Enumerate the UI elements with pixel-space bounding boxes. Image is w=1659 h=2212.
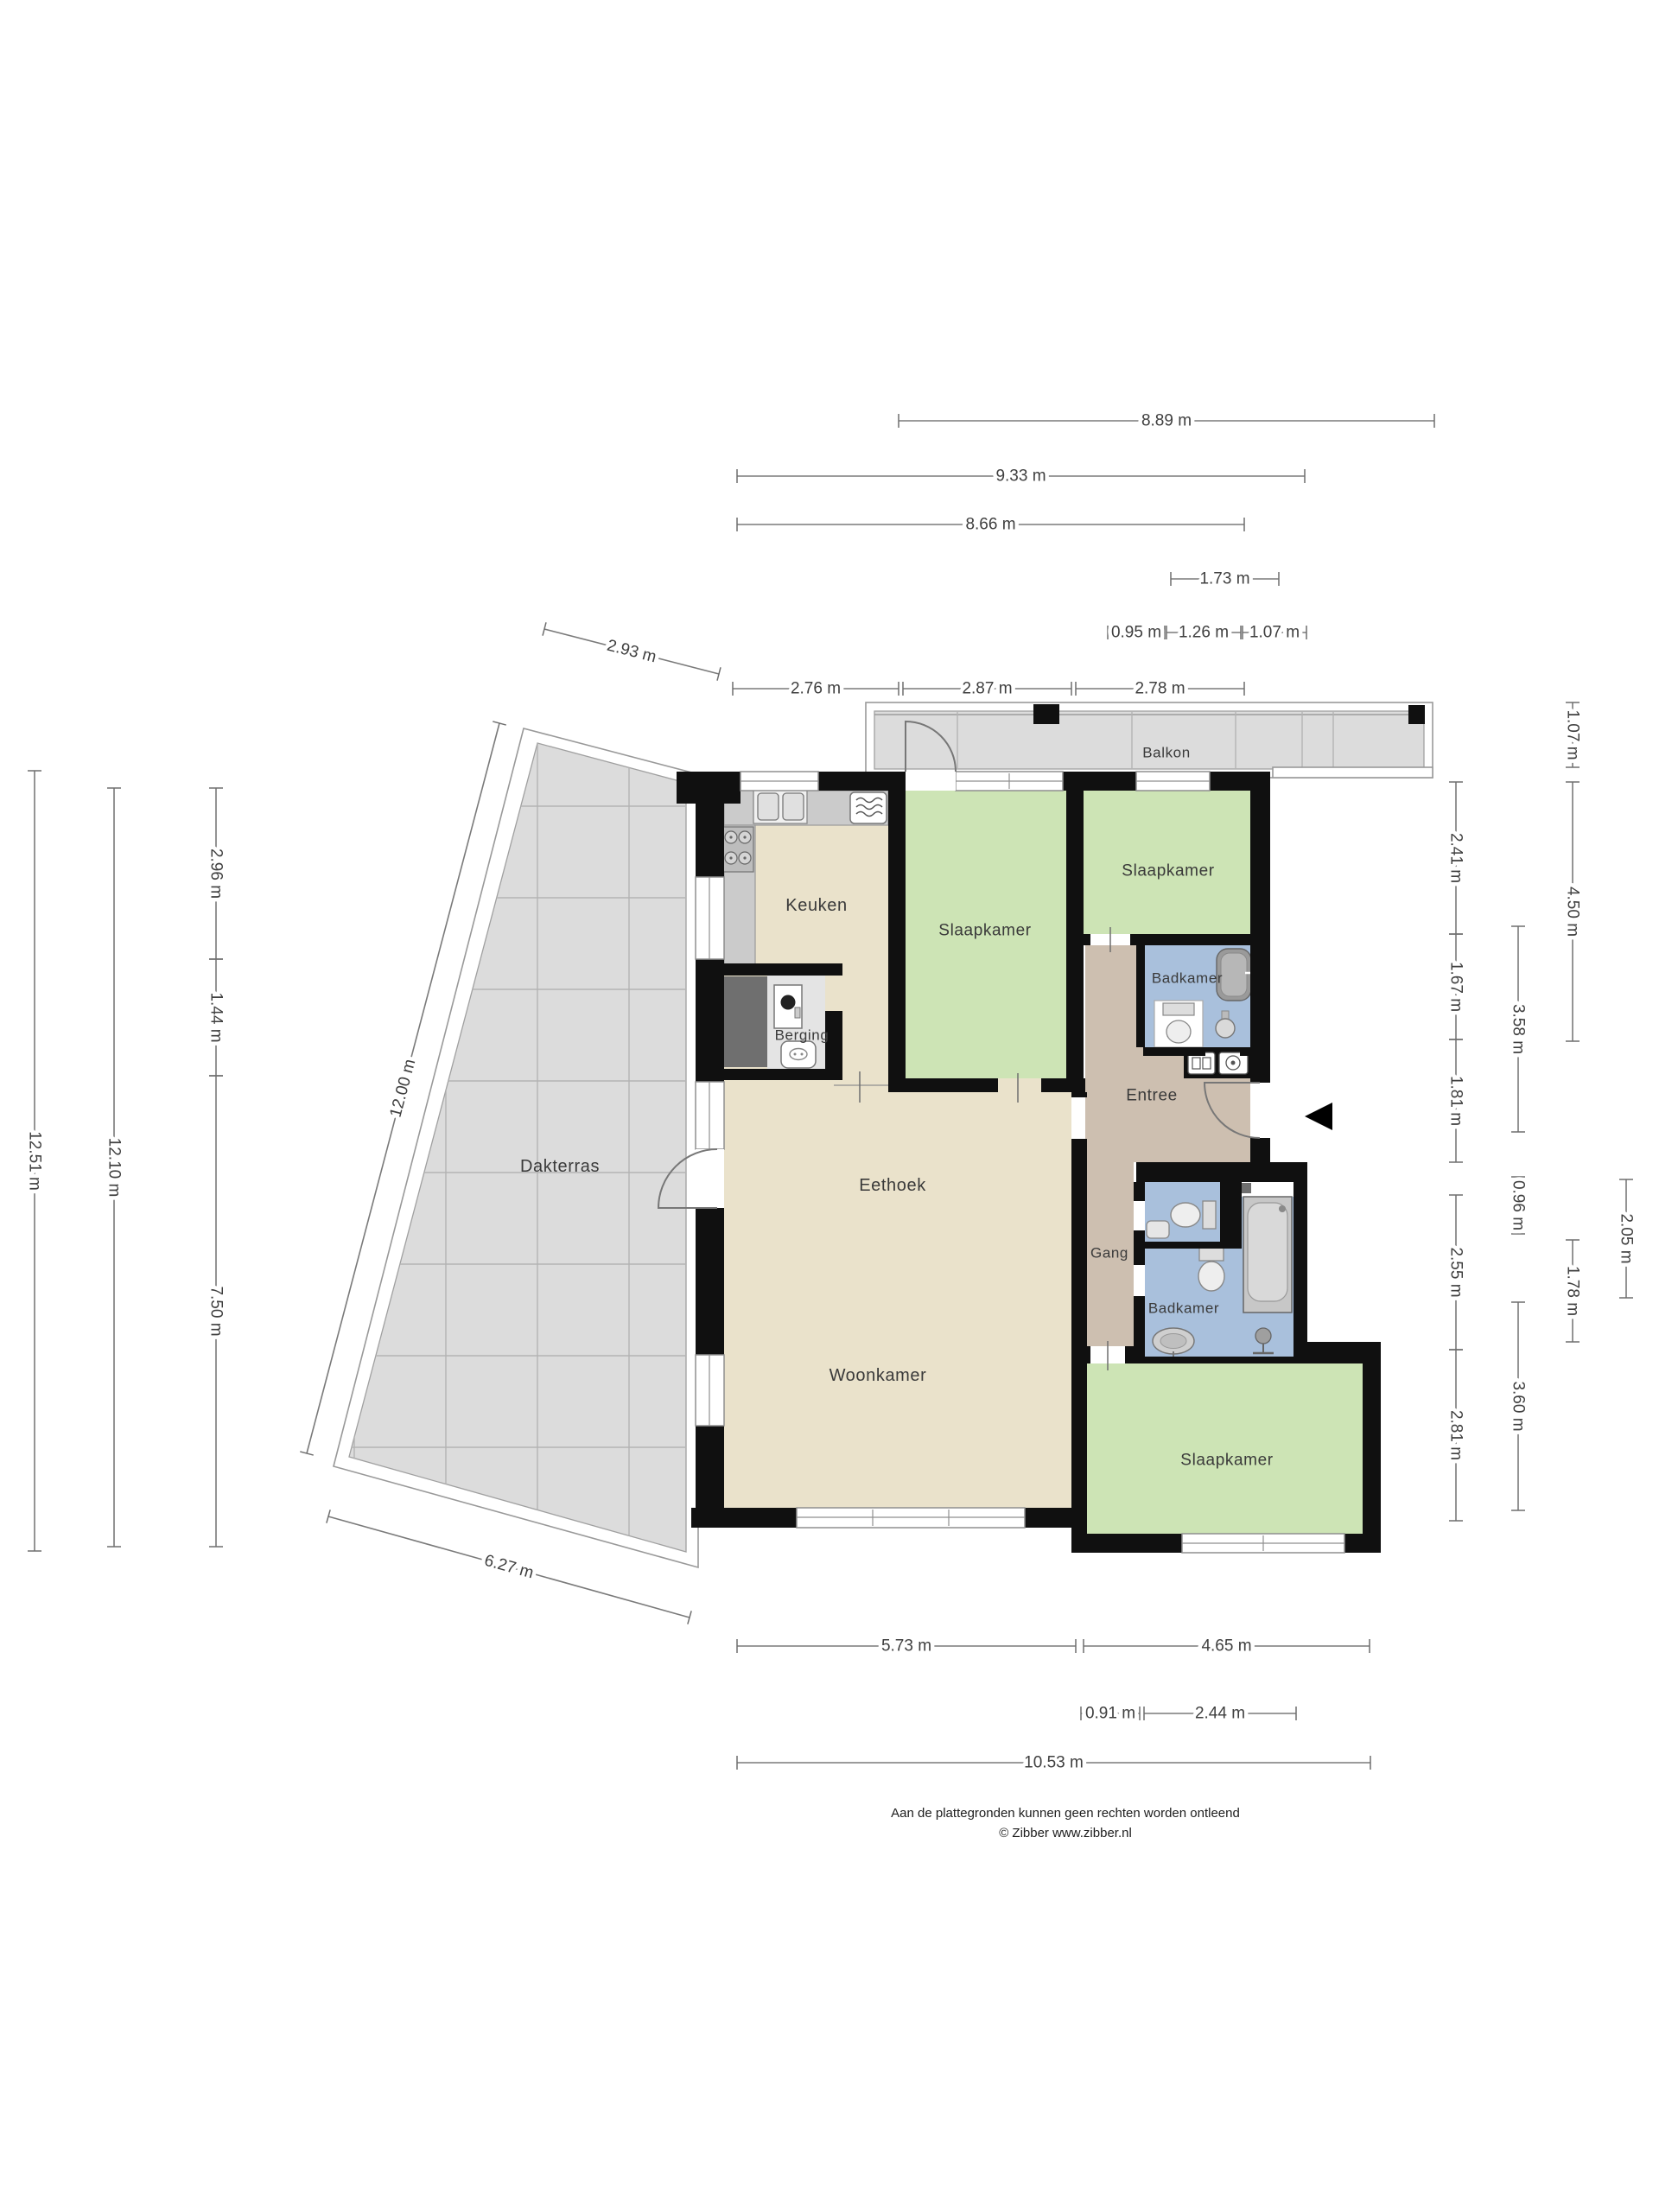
balcony-parapet [1273, 767, 1433, 778]
dimension-label: 9.33 m [995, 467, 1046, 486]
room-label-dakterras: Dakterras [520, 1157, 600, 1176]
dimension-label: 1.78 m [1564, 1266, 1582, 1316]
room-label-badkamer-2: Badkamer [1148, 1300, 1219, 1317]
dimension-label: 10.53 m [1024, 1754, 1084, 1772]
dimension: 2.05 m [1618, 1179, 1636, 1298]
dimension-label: 4.65 m [1201, 1637, 1251, 1656]
stove-hob-icon [722, 827, 753, 872]
dimension: 1.73 m [1171, 570, 1279, 588]
dimension: 12.51 m [26, 771, 44, 1551]
dimension: 4.65 m [1084, 1637, 1370, 1656]
toilet-2-icon [1171, 1201, 1216, 1229]
dimension: 12.10 m [105, 788, 124, 1547]
dimension-label: 0.95 m [1111, 624, 1161, 642]
footer-disclaimer: Aan de plattegronden kunnen geen rechten… [891, 1806, 1240, 1821]
dimension-label: 0.91 m [1085, 1705, 1135, 1723]
dimension-label: 2.41 m [1447, 833, 1465, 883]
dimension: 1.07 m [1564, 702, 1582, 767]
dimension: 1.44 m [207, 959, 226, 1076]
dimension: 2.81 m [1447, 1350, 1465, 1521]
dimension: 0.95 m [1108, 624, 1165, 642]
dimension: 1.67 m [1447, 934, 1465, 1039]
dimension-label: 1.73 m [1199, 570, 1249, 588]
room-label-slaapkamer-1: Slaapkamer [938, 922, 1031, 940]
room-label-badkamer-1: Badkamer [1152, 970, 1223, 987]
dimension-label: 2.44 m [1195, 1705, 1245, 1723]
dimension: 2.93 m [543, 622, 721, 680]
balkon-balcony [866, 702, 1433, 778]
dimension: 8.89 m [899, 412, 1434, 430]
dimension-label: 2.78 m [1135, 680, 1185, 698]
dimension: 0.96 m [1510, 1177, 1528, 1234]
dimension: 2.55 m [1447, 1195, 1465, 1350]
dimension: 1.81 m [1447, 1039, 1465, 1162]
dimension: 3.58 m [1510, 926, 1528, 1132]
dimension: 2.78 m [1076, 680, 1244, 698]
terrace-door-opening [696, 1149, 724, 1208]
dimension: 0.91 m [1081, 1705, 1140, 1723]
dimension-label: 7.50 m [207, 1286, 226, 1336]
dimension-label: 4.50 m [1564, 887, 1582, 937]
dimension-label: 2.81 m [1447, 1410, 1465, 1460]
dimension-label: 2.93 m [605, 637, 658, 667]
dimension-label: 2.87 m [962, 680, 1012, 698]
dimension-label: 1.07 m [1249, 624, 1300, 642]
dimension: 2.41 m [1447, 782, 1465, 934]
dimension-label: 3.58 m [1510, 1004, 1528, 1054]
dimension-label: 12.51 m [26, 1131, 44, 1191]
floorplan-drawing: DakterrasKeukenBergingSlaapkamerSlaapkam… [0, 0, 1659, 2212]
dimension-label: 5.73 m [881, 1637, 931, 1656]
room-label-balkon: Balkon [1142, 745, 1191, 761]
entrance-arrow-icon [1305, 1103, 1332, 1130]
dimension: 5.73 m [737, 1637, 1076, 1656]
dimension-label: 2.55 m [1447, 1247, 1465, 1297]
dimension: 4.50 m [1564, 782, 1582, 1041]
dimension: 9.33 m [737, 467, 1305, 486]
dimension: 10.53 m [737, 1754, 1370, 1772]
washing-machine-icon [774, 985, 802, 1028]
room-label-woonkamer: Woonkamer [829, 1366, 927, 1385]
dimension: 8.66 m [737, 516, 1244, 534]
dimension-label: 1.81 m [1447, 1076, 1465, 1126]
dimension-label: 2.76 m [791, 680, 841, 698]
dimension: 3.60 m [1510, 1302, 1528, 1510]
dimension-label: 0.96 m [1510, 1180, 1528, 1230]
bathtub-icon [1243, 1197, 1292, 1313]
oven-icon [850, 792, 887, 823]
toilet-3-icon [1198, 1248, 1224, 1291]
balcony-pillar-left [1033, 704, 1059, 724]
footer-copyright: © Zibber www.zibber.nl [999, 1826, 1132, 1840]
dimension-label: 6.27 m [482, 1552, 536, 1583]
dimension-label: 12.00 m [387, 1058, 420, 1120]
dimension-label: 2.96 m [207, 849, 226, 899]
utility-shaft [724, 976, 767, 1067]
dimension: 2.76 m [733, 680, 899, 698]
dimension-label: 2.05 m [1618, 1213, 1636, 1263]
dimension: 1.26 m [1166, 624, 1241, 642]
dimension-label: 8.66 m [965, 516, 1015, 534]
room-label-eethoek: Eethoek [859, 1176, 926, 1195]
room-label-berging: Berging [775, 1027, 829, 1044]
fountain-sink-icon [1147, 1221, 1169, 1238]
room-label-entree: Entree [1126, 1087, 1178, 1105]
bedroom-3-floor [1087, 1363, 1363, 1534]
dimension-label: 12.10 m [105, 1138, 124, 1198]
toilet-1-icon [1154, 1001, 1203, 1047]
footer: Aan de plattegronden kunnen geen rechten… [891, 1806, 1240, 1840]
boiler-icon [781, 1041, 816, 1068]
floorplan-page: DakterrasKeukenBergingSlaapkamerSlaapkam… [0, 0, 1659, 2212]
balcony-pillar-right [1408, 705, 1425, 724]
dimension-label: 1.07 m [1564, 709, 1582, 760]
dimension: 1.78 m [1564, 1240, 1582, 1342]
room-label-keuken: Keuken [785, 896, 847, 915]
room-label-slaapkamer-3: Slaapkamer [1180, 1452, 1273, 1470]
room-label-slaapkamer-2: Slaapkamer [1122, 862, 1214, 880]
balcony-door-opening [906, 772, 956, 791]
dimension-label: 1.44 m [207, 992, 226, 1042]
dimension: 2.96 m [207, 788, 226, 959]
room-label-gang: Gang [1090, 1245, 1128, 1262]
front-door-opening [1250, 1083, 1270, 1138]
dakterras-terrace [328, 726, 700, 1573]
dimension: 2.44 m [1144, 1705, 1296, 1723]
dimension-label: 8.89 m [1141, 412, 1192, 430]
dimension-label: 1.67 m [1447, 962, 1465, 1012]
terrace-floor [349, 743, 686, 1552]
dimension: 2.87 m [903, 680, 1071, 698]
dimension: 1.07 m [1243, 624, 1306, 642]
dimension-label: 1.26 m [1179, 624, 1229, 642]
dimension-label: 3.60 m [1510, 1381, 1528, 1431]
dimension: 7.50 m [207, 1076, 226, 1547]
